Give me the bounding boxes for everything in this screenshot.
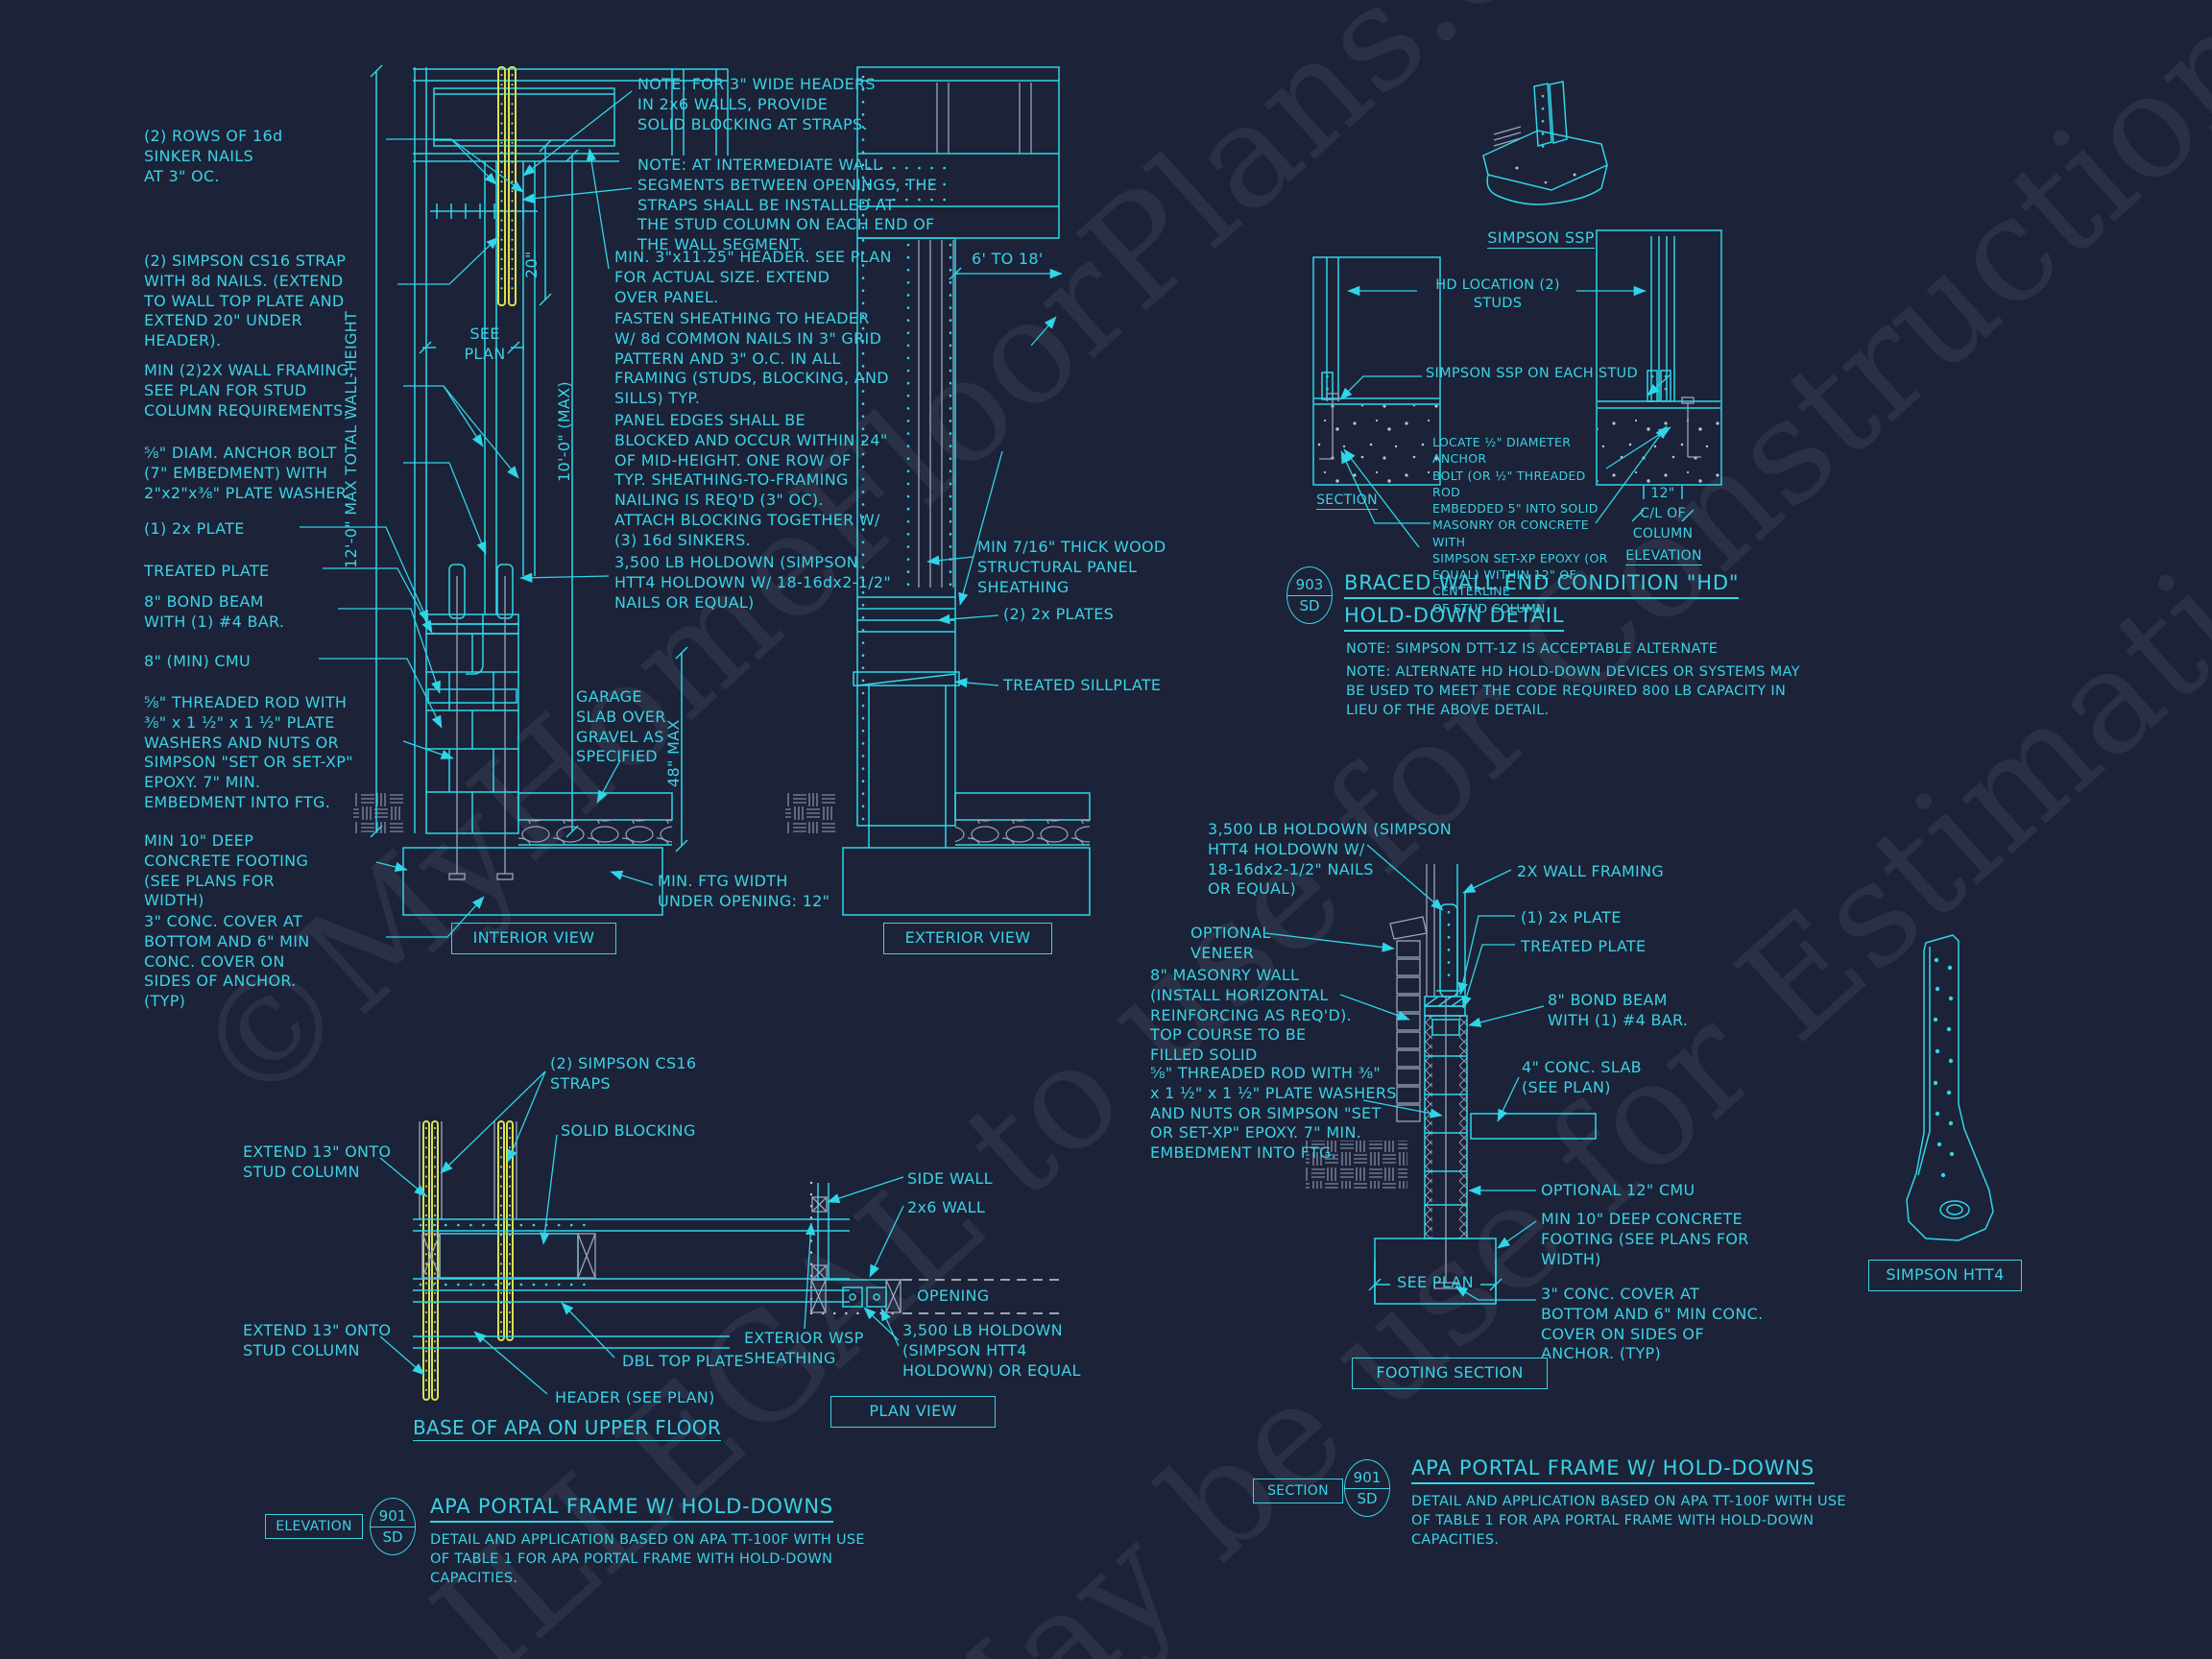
detail-number: 903 (1296, 578, 1324, 592)
note-panel-edges: PANEL EDGES SHALL BE BLOCKED AND OCCUR W… (614, 411, 1018, 551)
note-wide-headers: NOTE: FOR 3" WIDE HEADERS IN 2x6 WALLS, … (637, 75, 1041, 134)
label-elevation-view: ELEVATION (1621, 547, 1707, 565)
dim-see-plan: SEE PLAN (437, 325, 533, 365)
callout-fs-bond-beam: 8" BOND BEAM WITH (1) #4 BAR. (1548, 991, 1768, 1031)
callout-ba-straps: (2) SIMPSON CS16 STRAPS (550, 1054, 781, 1094)
simpson-htt4-linework (1907, 935, 1993, 1240)
detail-number: 901 (1354, 1471, 1382, 1485)
callout-2x-plates: (2) 2x PLATES (1003, 605, 1205, 625)
detail-bubble-901-elevation: 901 SD (370, 1498, 416, 1555)
callout-anchor-bolt: ⅝" DIAM. ANCHOR BOLT (7" EMBEDMENT) WITH… (144, 444, 470, 503)
callout-treated-sillplate: TREATED SILLPLATE (1003, 676, 1253, 696)
label-simpson-htt4: SIMPSON HTT4 (1868, 1260, 2022, 1291)
callout-fs-holdown: 3,500 LB HOLDOWN (SIMPSON HTT4 HOLDOWN W… (1208, 820, 1496, 900)
note-apa-portal-section: DETAIL AND APPLICATION BASED ON APA TT-1… (1411, 1492, 1949, 1550)
title-apa-portal-section: APA PORTAL FRAME W/ HOLD-DOWNS (1411, 1455, 1815, 1481)
dim-total-wall-height: 12'-0" MAX TOTAL WALL HEIGHT (342, 311, 362, 568)
label-column: COLUMN (1627, 525, 1698, 542)
view-title-interior: INTERIOR VIEW (451, 923, 616, 954)
note-alternate-hd: NOTE: ALTERNATE HD HOLD-DOWN DEVICES OR … (1346, 662, 1903, 720)
note-intermediate-wall: NOTE: AT INTERMEDIATE WALL SEGMENTS BETW… (637, 156, 1098, 255)
tag-elevation: ELEVATION (265, 1514, 363, 1539)
bubble-divider (1345, 1488, 1389, 1489)
label-cl-of: C/L OF (1627, 505, 1698, 522)
note-dtt: NOTE: SIMPSON DTT-1Z IS ACCEPTABLE ALTER… (1346, 639, 1903, 659)
sheet-id: SD (1299, 599, 1319, 613)
dim-fs-see-plan: SEE PLAN (1387, 1273, 1483, 1293)
callout-garage-slab: GARAGE SLAB OVER GRAVEL AS SPECIFIED (576, 687, 749, 767)
callout-pv-side-wall: SIDE WALL (907, 1169, 1051, 1190)
detail-bubble-901-section: 901 SD (1344, 1459, 1390, 1517)
dim-opening-span: 6' TO 18' (972, 250, 1106, 270)
bubble-divider (371, 1527, 415, 1527)
callout-fs-2x-plate: (1) 2x PLATE (1521, 908, 1694, 928)
title-base-of-apa: BASE OF APA ON UPPER FLOOR (413, 1415, 721, 1440)
dim-12in-cl: 12" (1632, 485, 1694, 502)
title-braced-wall-1: BRACED WALL END CONDITION "HD" (1344, 570, 1739, 596)
callout-fs-conc-cover: 3" CONC. COVER AT BOTTOM AND 6" MIN CONC… (1541, 1285, 1877, 1364)
cad-sheet: ©MyHomeFloorPlans.com ILLEGAL to use for… (0, 0, 2212, 1659)
note-apa-portal-elevation: DETAIL AND APPLICATION BASED ON APA TT-1… (430, 1530, 968, 1588)
label-section-view: SECTION (1304, 492, 1390, 509)
title-apa-portal-elevation: APA PORTAL FRAME W/ HOLD-DOWNS (430, 1494, 833, 1520)
callout-footing: MIN 10" DEEP CONCRETE FOOTING (SEE PLANS… (144, 831, 403, 911)
callout-sinker-nails: (2) ROWS OF 16d SINKER NAILS AT 3" OC. (144, 127, 403, 186)
callout-treated-plate: TREATED PLATE (144, 562, 355, 582)
sheet-id: SD (1357, 1492, 1377, 1506)
bubble-divider (1287, 595, 1332, 596)
tag-section: SECTION (1253, 1479, 1343, 1503)
callout-fs-conc-slab: 4" CONC. SLAB (SEE PLAN) (1522, 1058, 1723, 1098)
callout-fs-masonry-wall: 8" MASONRY WALL (INSTALL HORIZONTAL REIN… (1150, 966, 1467, 1066)
callout-pv-2x6-wall: 2x6 WALL (907, 1198, 1051, 1218)
callout-fs-threaded-rod: ⅝" THREADED ROD WITH ⅜" x 1 ½" x 1 ½" PL… (1150, 1064, 1486, 1164)
callout-ba-solid-blocking: SOLID BLOCKING (561, 1121, 791, 1142)
callout-cmu: 8" (MIN) CMU (144, 652, 355, 672)
callout-conc-cover: 3" CONC. COVER AT BOTTOM AND 6" MIN CONC… (144, 912, 422, 1012)
callout-ba-extend-bottom: EXTEND 13" ONTO STUD COLUMN (243, 1321, 473, 1361)
callout-2x-plate: (1) 2x PLATE (144, 519, 355, 540)
callout-ftg-width: MIN. FTG WIDTH UNDER OPENING: 12" (658, 872, 946, 912)
callout-fs-optional-cmu: OPTIONAL 12" CMU (1541, 1181, 1781, 1201)
callout-wall-framing: MIN (2)2X WALL FRAMING, SEE PLAN FOR STU… (144, 361, 461, 421)
callout-ba-header: HEADER (SEE PLAN) (555, 1388, 814, 1408)
callout-fs-wall-framing: 2X WALL FRAMING (1517, 862, 1747, 882)
callout-ssp-each-stud: SIMPSON SSP ON EACH STUD (1426, 365, 1675, 383)
callout-holdown-3500: 3,500 LB HOLDOWN (SIMPSON HTT4 HOLDOWN W… (614, 553, 1027, 613)
callout-fs-treated-plate: TREATED PLATE (1521, 937, 1713, 957)
callout-ba-extend-top: EXTEND 13" ONTO STUD COLUMN (243, 1142, 473, 1183)
sheet-id: SD (382, 1530, 402, 1545)
callout-bond-beam: 8" BOND BEAM WITH (1) #4 BAR. (144, 592, 365, 633)
detail-number: 901 (379, 1509, 407, 1524)
drawing-linework (0, 0, 2212, 1659)
callout-cs16-strap: (2) SIMPSON CS16 STRAP WITH 8d NAILS. (E… (144, 252, 442, 351)
note-fasten-sheathing: FASTEN SHEATHING TO HEADER W/ 8d COMMON … (614, 309, 1037, 409)
dim-hd-location: HD LOCATION (2) STUDS (1411, 276, 1584, 313)
dim-20in: 20" (522, 251, 542, 278)
callout-wsp-sheathing: MIN 7/16" THICK WOOD STRUCTURAL PANEL SH… (977, 538, 1217, 597)
view-title-plan: PLAN VIEW (830, 1396, 996, 1428)
label-simpson-ssp: SIMPSON SSP (1479, 228, 1603, 249)
callout-fs-footing: MIN 10" DEEP CONCRETE FOOTING (SEE PLANS… (1541, 1210, 1858, 1269)
callout-threaded-rod: ⅝" THREADED ROD WITH ⅜" x 1 ½" x 1 ½" PL… (144, 693, 470, 813)
title-braced-wall-2: HOLD-DOWN DETAIL (1344, 603, 1564, 629)
dim-48in-max: 48" MAX (664, 719, 685, 787)
view-title-footing-section: FOOTING SECTION (1352, 1358, 1548, 1389)
callout-pv-holdown: 3,500 LB HOLDOWN (SIMPSON HTT4 HOLDOWN) … (902, 1321, 1171, 1381)
detail-bubble-903: 903 SD (1286, 566, 1333, 624)
view-title-exterior: EXTERIOR VIEW (883, 923, 1052, 954)
callout-fs-veneer: OPTIONAL VENEER (1190, 924, 1334, 964)
dim-10ft-max: 10'-0" (MAX) (555, 381, 575, 482)
label-pv-opening: OPENING (917, 1286, 1061, 1307)
